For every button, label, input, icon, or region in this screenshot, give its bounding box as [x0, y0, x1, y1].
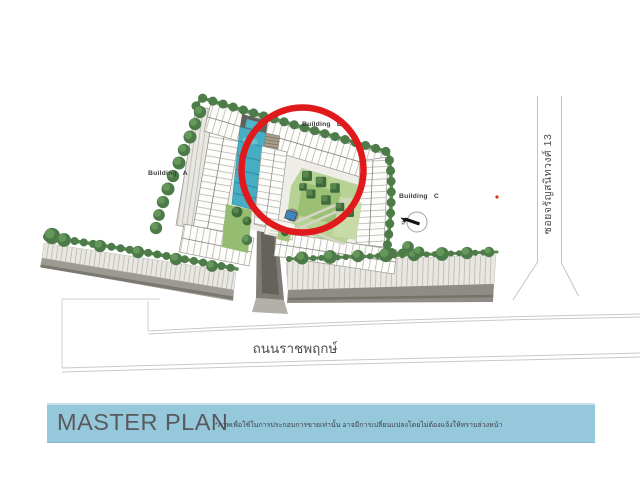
compass-label: N — [400, 221, 406, 225]
master-plan-slide: ถนนราชพฤกษ์ ซอยจรัญสนิทวงศ์ 13 — [0, 0, 640, 480]
master-plan-banner: MASTER PLAN *ภาพเพื่อใช้ในการประกอบการขา… — [47, 403, 595, 443]
bottom-road-label: ถนนราชพฤกษ์ — [253, 340, 338, 356]
banner-title: MASTER PLAN — [57, 411, 228, 435]
building-c-label: Building C — [399, 193, 439, 200]
building-a-label: Building A — [148, 170, 188, 177]
building-b-label: Building B — [302, 121, 342, 128]
banner-disclaimer: *ภาพเพื่อใช้ในการประกอบการขายเท่านั้น อา… — [215, 422, 502, 430]
right-road-label: ซอยจรัญสนิทวงศ์ 13 — [541, 134, 554, 235]
marker-dot — [495, 195, 498, 198]
